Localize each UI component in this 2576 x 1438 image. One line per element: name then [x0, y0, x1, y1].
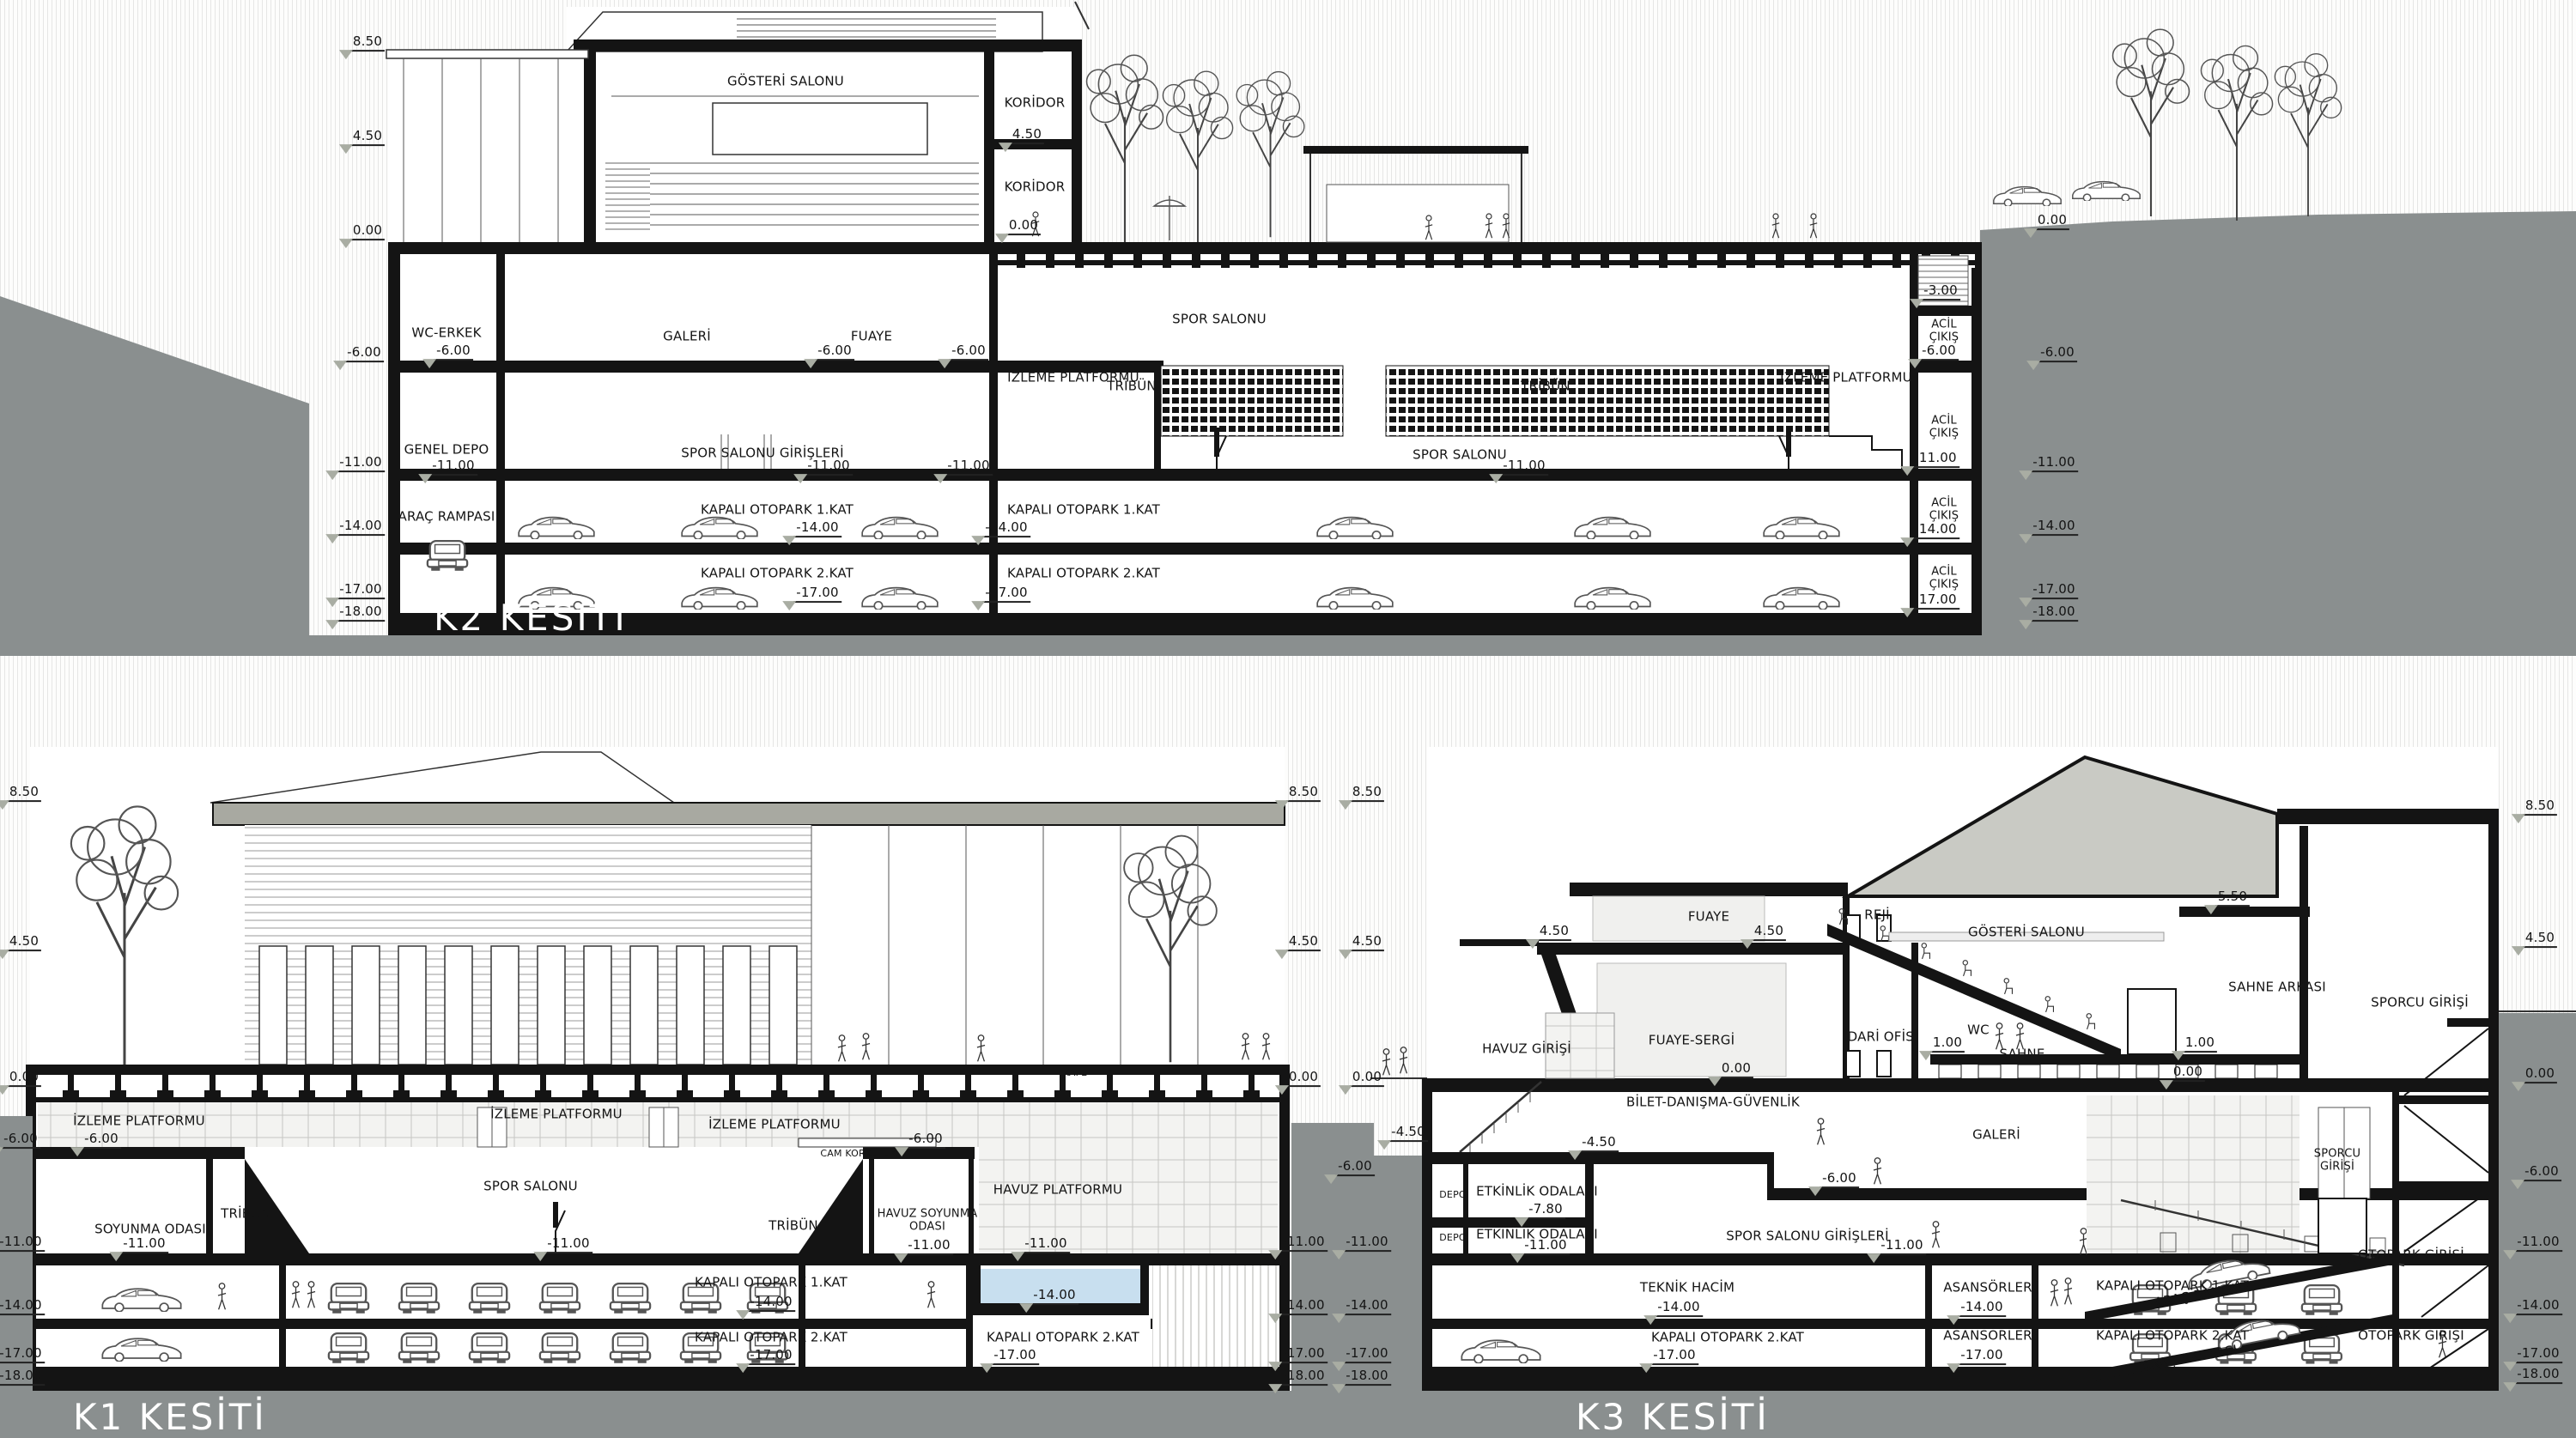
- room-label-kapali-otopark-2.kat: KAPALI OTOPARK 2.KAT: [1651, 1331, 1804, 1345]
- k3-section-title: K3 KESİTİ: [1576, 1396, 1770, 1438]
- room-label-tribun: TRİBÜN: [1107, 379, 1157, 394]
- level-marker-6.00: -6.00: [2038, 345, 2077, 362]
- room-label-kapali-otopark-2.kat: KAPALI OTOPARK 2.KAT: [987, 1331, 1139, 1345]
- room-label-fuaye: FUAYE: [1688, 910, 1729, 925]
- level-marker-11.00: -11.00: [544, 1236, 592, 1253]
- level-marker-14.00: -14.00: [747, 1295, 795, 1312]
- level-marker-14.00: -14.00: [1279, 1298, 1327, 1315]
- room-label-depo: DEPO: [1439, 1233, 1467, 1243]
- level-marker-1.00: 1.00: [2183, 1035, 2217, 1053]
- level-marker-11.00: -11.00: [945, 458, 993, 476]
- level-marker-11.00: -11.00: [1522, 1238, 1570, 1255]
- level-marker-14.00: -14.00: [337, 519, 385, 536]
- room-label-fuaye-sergi: FUAYE-SERGİ: [1649, 1034, 1735, 1048]
- level-marker-17.00: -17.00: [991, 1348, 1039, 1365]
- level-marker-4.50: -4.50: [1579, 1135, 1619, 1152]
- room-label-galeri: GALERİ: [1972, 1128, 2020, 1143]
- room-label-bilet-danisma-guvenlik: BİLET-DANIŞMA-GÜVENLİK: [1626, 1095, 1800, 1110]
- room-label-kapali-otopark-1.kat: KAPALI OTOPARK 1.KAT: [695, 1276, 848, 1290]
- level-marker-14.00: -14.00: [0, 1298, 45, 1315]
- room-label-gosteri-salonu: GÖSTERİ SALONU: [727, 75, 844, 89]
- level-marker-11.00: -11.00: [1022, 1236, 1070, 1253]
- room-label-kafe: KAFE: [1063, 1068, 1088, 1078]
- level-marker-6.00: -6.00: [344, 345, 384, 362]
- level-marker-6.00: -6.00: [1335, 1159, 1375, 1176]
- room-label-havuz-soyunma-odasi: HAVUZ SOYUNMA ODASI: [878, 1208, 978, 1233]
- level-marker-4.50: -4.50: [1388, 1125, 1428, 1142]
- level-marker-8.50: 8.50: [1350, 785, 1384, 802]
- level-marker-8.50: 8.50: [1286, 785, 1321, 802]
- level-marker-11.00: -11.00: [1279, 1235, 1327, 1252]
- level-marker-4.50: 4.50: [1286, 934, 1321, 951]
- room-label-genel-depo: GENEL DEPO: [404, 443, 489, 458]
- level-marker-18.00: -18.00: [1343, 1368, 1391, 1386]
- room-label-koridor: KORİDOR: [1005, 180, 1066, 195]
- room-label-spor-salonu: SPOR SALONU: [1172, 312, 1267, 327]
- level-marker-11.00: -11.00: [905, 1238, 953, 1255]
- room-label-kapali-otopark-1.kat: KAPALI OTOPARK 1.KAT: [701, 503, 854, 518]
- room-label-kapali-otopark-2.kat: KAPALI OTOPARK 2.KAT: [1007, 567, 1160, 581]
- level-marker-6.00: -6.00: [949, 343, 988, 361]
- room-label-sporcu-girisi: SPORCU GİRİŞİ: [2314, 1148, 2361, 1173]
- room-label-asansorler: ASANSÖRLER: [1943, 1329, 2032, 1344]
- level-marker-14.00: -14.00: [1911, 522, 1959, 539]
- level-marker-14.00: -14.00: [2030, 519, 2078, 536]
- level-marker-0.00: 0.00: [1006, 218, 1041, 235]
- level-marker-14.00: -14.00: [793, 520, 841, 537]
- room-label-acil-cikis: ACİL ÇIKIŞ: [1929, 497, 1959, 522]
- level-marker-11.00: -11.00: [2514, 1235, 2562, 1252]
- level-marker-11.00: -11.00: [1878, 1238, 1926, 1255]
- level-marker-14.00: -14.00: [1958, 1300, 2006, 1317]
- level-marker-1.00: 1.00: [1930, 1035, 1965, 1053]
- room-label-depo: DEPO: [1439, 1190, 1467, 1200]
- room-label-soyunma-odasi: SOYUNMA ODASI: [94, 1223, 206, 1237]
- level-marker-3.00: -3.00: [1921, 283, 1960, 300]
- level-marker-11.00: -11.00: [0, 1235, 45, 1252]
- level-marker-17.00: -17.00: [0, 1346, 45, 1363]
- room-label-kapali-otopark-1.kat: KAPALI OTOPARK 1.KAT: [1007, 503, 1160, 518]
- level-marker-18.00: -18.00: [2030, 604, 2078, 622]
- labels-layer: K2 KESİTİ K1 KESİTİ K3 KESİTİ 8.504.500.…: [0, 0, 2576, 1438]
- level-marker-6.00: -6.00: [1919, 343, 1959, 361]
- level-marker-18.00: -18.00: [1279, 1368, 1327, 1386]
- level-marker-4.50: 4.50: [1010, 127, 1044, 144]
- level-marker-17.00: -17.00: [337, 582, 385, 599]
- room-label-arac-rampasi: ARAÇ RAMPASI: [2141, 1343, 2239, 1374]
- room-label-havuz-platformu: HAVUZ PLATFORMU: [993, 1183, 1122, 1198]
- level-marker-11.00: -11.00: [120, 1236, 168, 1253]
- level-marker-8.50: 8.50: [350, 34, 385, 52]
- level-marker-14.00: -14.00: [1343, 1298, 1391, 1315]
- room-label-reji: REJİ: [1864, 908, 1890, 923]
- level-marker-8.50: 8.50: [7, 785, 41, 802]
- room-label-wc-erkek: WC-ERKEK: [411, 326, 481, 341]
- level-marker-11.00: -11.00: [337, 455, 385, 472]
- level-marker-6.00: -6.00: [1820, 1171, 1859, 1188]
- level-marker-17.00: -17.00: [2030, 582, 2078, 599]
- room-label-koridor: KORİDOR: [1005, 96, 1066, 111]
- level-marker-6.00: -6.00: [2522, 1164, 2561, 1181]
- level-marker-17.00: -17.00: [1650, 1348, 1698, 1365]
- room-label-sahne: SAHNE: [1999, 1047, 2044, 1062]
- level-marker-11.00: -11.00: [805, 458, 853, 476]
- level-marker-0.00: 0.00: [350, 223, 385, 240]
- level-marker-0.00: 0.00: [1286, 1070, 1321, 1087]
- room-label-kapali-otopark-2.kat: KAPALI OTOPARK 2.KAT: [701, 567, 854, 581]
- room-label-spor-salonu-girisleri: SPOR SALONU GİRİŞLERİ: [1726, 1229, 1889, 1244]
- level-marker-4.50: 4.50: [1350, 934, 1384, 951]
- room-label-asansorler: ASANSÖRLER: [1943, 1281, 2032, 1295]
- level-marker-7.80: -7.80: [1526, 1202, 1565, 1219]
- level-marker-11.00: -11.00: [1500, 458, 1548, 476]
- level-marker-17.00: -17.00: [1343, 1346, 1391, 1363]
- room-label-teknik-hacim: TEKNİK HACİM: [1640, 1281, 1735, 1295]
- room-label-spor-salonu: SPOR SALONU: [1413, 448, 1507, 463]
- level-marker-18.00: -18.00: [2514, 1367, 2562, 1384]
- level-marker-18.00: -18.00: [337, 604, 385, 622]
- room-label-havuz-girisi: HAVUZ GİRİŞİ: [1482, 1042, 1571, 1057]
- level-marker-4.50: 4.50: [1537, 924, 1571, 941]
- level-marker-17.00: -17.00: [793, 586, 841, 603]
- room-label-kapali-otopark-2.kat: KAPALI OTOPARK 2.KAT: [695, 1331, 848, 1345]
- room-label-acil-cikis: ACİL ÇIKIŞ: [1929, 566, 1959, 591]
- level-marker-18.00: -18.00: [0, 1368, 45, 1386]
- level-marker-11.00: -11.00: [2030, 455, 2078, 472]
- level-marker-14.00: -14.00: [2514, 1298, 2562, 1315]
- room-label-tribun: TRİBÜN: [1521, 379, 1571, 394]
- level-marker-0.00: 0.00: [2523, 1066, 2557, 1083]
- room-label-kapali-otopark-2.kat: KAPALI OTOPARK 2.KAT: [2096, 1329, 2249, 1344]
- room-label-spor-salonu: SPOR SALONU: [483, 1180, 578, 1194]
- level-marker-17.00: -17.00: [982, 586, 1030, 603]
- room-label-arac-rampasi: ARAÇ RAMPASI: [398, 510, 495, 525]
- level-marker-11.00: -11.00: [429, 458, 477, 476]
- room-label-gosteri-salonu: GÖSTERİ SALONU: [1968, 925, 2085, 940]
- level-marker-4.50: 4.50: [2523, 931, 2557, 948]
- level-marker-0.00: 0.00: [1719, 1061, 1753, 1078]
- level-marker-0.00: 0.00: [1350, 1070, 1384, 1087]
- level-marker-6.00: -6.00: [906, 1132, 945, 1149]
- room-label-idari-ofis: İDARİ OFİS: [1844, 1030, 1914, 1045]
- room-label-wc: WC: [1967, 1023, 1990, 1038]
- k2-section-title: K2 KESİTİ: [434, 597, 628, 639]
- room-label-cam-korkuluk: CAM KORKULUK: [820, 1149, 896, 1159]
- room-label-otopark-girisi: OTOPARK GİRİŞİ: [2358, 1248, 2464, 1263]
- k1-section-title: K1 KESİTİ: [73, 1396, 267, 1438]
- room-label-etkinlik-odalari: ETKİNLİK ODALARI: [1476, 1185, 1598, 1199]
- room-label-izleme-platformu: İZLEME PLATFORMU: [708, 1118, 841, 1132]
- level-marker-6.00: -6.00: [1, 1132, 40, 1149]
- room-label-acil-cikis: ACİL ÇIKIŞ: [1929, 319, 1959, 343]
- level-marker-11.00: -11.00: [1343, 1235, 1391, 1252]
- room-label-acil-cikis: ACİL ÇIKIŞ: [1929, 415, 1959, 440]
- level-marker-8.50: 8.50: [2523, 798, 2557, 816]
- room-label-tribun: TRİBÜN: [221, 1207, 270, 1222]
- level-marker-14.00: -14.00: [1030, 1288, 1078, 1305]
- level-marker-4.50: 4.50: [7, 934, 41, 951]
- level-marker-14.00: -14.00: [1655, 1300, 1703, 1317]
- level-marker-11.00: -11.00: [1911, 451, 1959, 468]
- room-label-sahne-arkasi: SAHNE ARKASI: [2228, 980, 2326, 995]
- room-label-sporcu-girisi: SPORCU GİRİŞİ: [2371, 996, 2469, 1010]
- level-marker-4.50: 4.50: [1752, 924, 1786, 941]
- level-marker-6.00: -6.00: [815, 343, 854, 361]
- room-label-izleme-platformu: İZLEME PLATFORMU: [1780, 371, 1912, 385]
- level-marker-5.50: 5.50: [2215, 889, 2250, 907]
- level-marker-17.00: -17.00: [2514, 1346, 2562, 1363]
- room-label-izleme-platformu: İZLEME PLATFORMU: [490, 1107, 623, 1122]
- room-label-tribun: TRİBÜN: [769, 1219, 818, 1234]
- room-label-galeri: GALERİ: [663, 330, 711, 344]
- level-marker-0.00: 0.00: [2171, 1065, 2205, 1082]
- level-marker-0.00: 0.00: [7, 1070, 41, 1087]
- level-marker-6.00: -6.00: [434, 343, 473, 361]
- level-marker-0.00: 0.00: [2035, 213, 2069, 230]
- level-marker-17.00: -17.00: [747, 1348, 795, 1365]
- room-label-fuaye: FUAYE: [851, 330, 892, 344]
- level-marker-17.00: -17.00: [1911, 592, 1959, 610]
- level-marker-14.00: -14.00: [982, 520, 1030, 537]
- room-label-izleme-platformu: İZLEME PLATFORMU: [73, 1114, 205, 1129]
- level-marker-6.00: -6.00: [82, 1132, 121, 1149]
- room-label-otopark-girisi: OTOPARK GİRİŞİ: [2358, 1329, 2464, 1344]
- level-marker-17.00: -17.00: [1958, 1348, 2006, 1365]
- level-marker-4.50: 4.50: [350, 129, 385, 146]
- level-marker-17.00: -17.00: [1279, 1346, 1327, 1363]
